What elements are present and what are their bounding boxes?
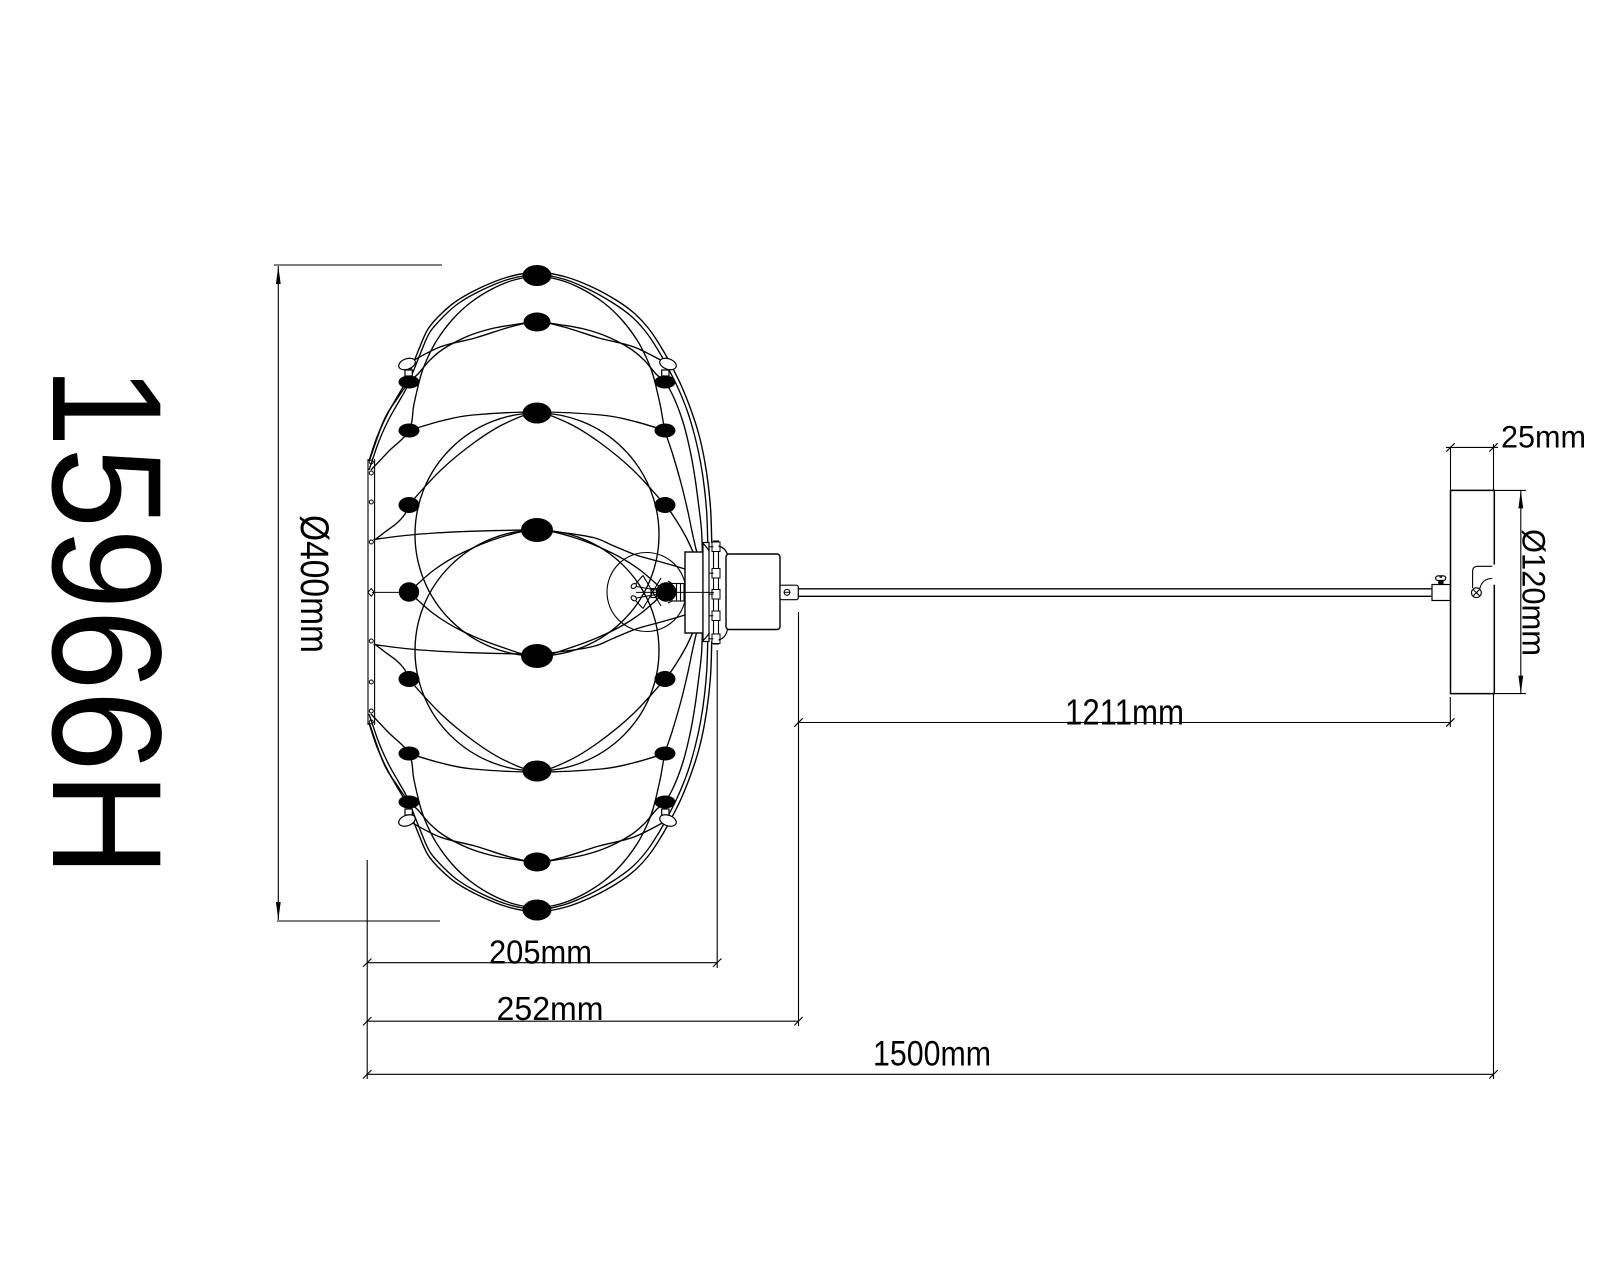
svg-text:1500mm: 1500mm: [873, 1035, 991, 1074]
svg-text:25mm: 25mm: [1501, 419, 1586, 455]
svg-text:Ø400mm: Ø400mm: [292, 515, 336, 653]
svg-text:Ø120mm: Ø120mm: [1516, 529, 1552, 656]
svg-text:252mm: 252mm: [497, 990, 604, 1027]
svg-text:15966H: 15966H: [19, 366, 193, 877]
svg-text:205mm: 205mm: [489, 934, 592, 971]
svg-text:1211mm: 1211mm: [1065, 692, 1184, 733]
